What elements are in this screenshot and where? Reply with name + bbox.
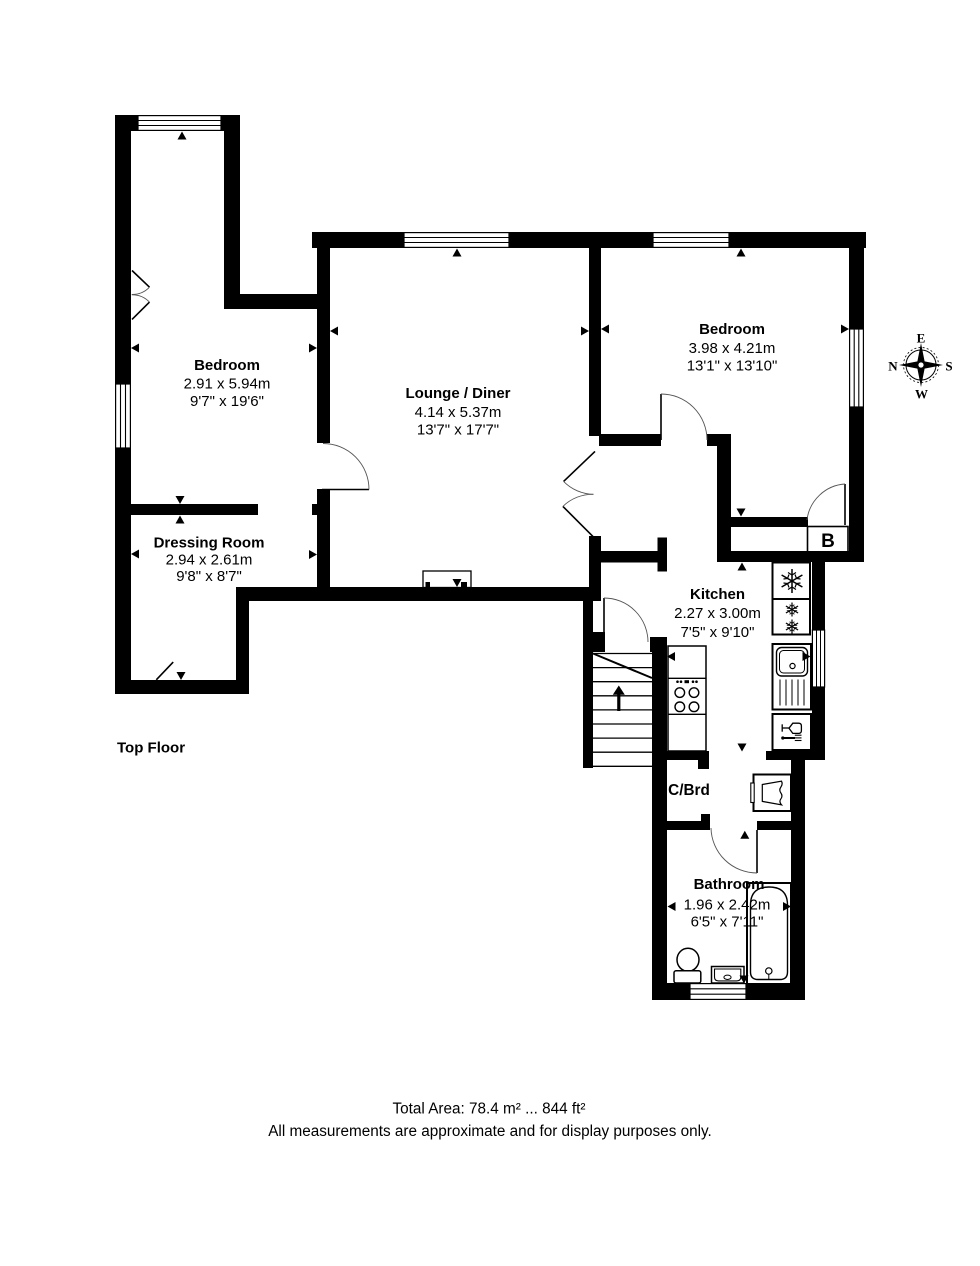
svg-text:Bedroom: Bedroom (699, 321, 765, 338)
svg-text:Lounge / Diner: Lounge / Diner (406, 385, 511, 402)
svg-text:B: B (821, 531, 835, 552)
svg-text:Kitchen: Kitchen (690, 586, 745, 603)
svg-text:9'8" x 8'7": 9'8" x 8'7" (176, 568, 242, 585)
svg-text:7'5" x 9'10": 7'5" x 9'10" (681, 624, 755, 641)
svg-text:W: W (915, 387, 928, 402)
svg-text:2.94 x 2.61m: 2.94 x 2.61m (166, 552, 253, 569)
svg-text:2.27 x 3.00m: 2.27 x 3.00m (674, 605, 761, 622)
svg-text:Bedroom: Bedroom (194, 357, 260, 374)
svg-text:S: S (945, 359, 952, 374)
svg-text:3.98 x 4.21m: 3.98 x 4.21m (689, 340, 776, 357)
svg-text:1.96 x 2.42m: 1.96 x 2.42m (684, 896, 771, 913)
svg-text:Total Area: 78.4 m² ... 844 ft: Total Area: 78.4 m² ... 844 ft² (392, 1101, 585, 1118)
svg-text:6'5" x 7'11": 6'5" x 7'11" (691, 914, 764, 931)
svg-text:13'7" x 17'7": 13'7" x 17'7" (417, 422, 499, 439)
svg-text:N: N (888, 359, 898, 374)
svg-text:Dressing Room: Dressing Room (154, 535, 265, 552)
svg-text:Top Floor: Top Floor (117, 740, 185, 757)
svg-text:4.14 x 5.37m: 4.14 x 5.37m (415, 404, 502, 421)
svg-text:2.91 x 5.94m: 2.91 x 5.94m (184, 376, 271, 393)
svg-text:All measurements are approxima: All measurements are approximate and for… (268, 1123, 712, 1140)
svg-text:C/Brd: C/Brd (668, 782, 710, 799)
svg-text:Bathroom: Bathroom (694, 876, 765, 893)
svg-text:13'1" x 13'10": 13'1" x 13'10" (687, 358, 778, 375)
svg-text:E: E (917, 331, 926, 346)
svg-text:9'7" x 19'6": 9'7" x 19'6" (190, 393, 264, 410)
